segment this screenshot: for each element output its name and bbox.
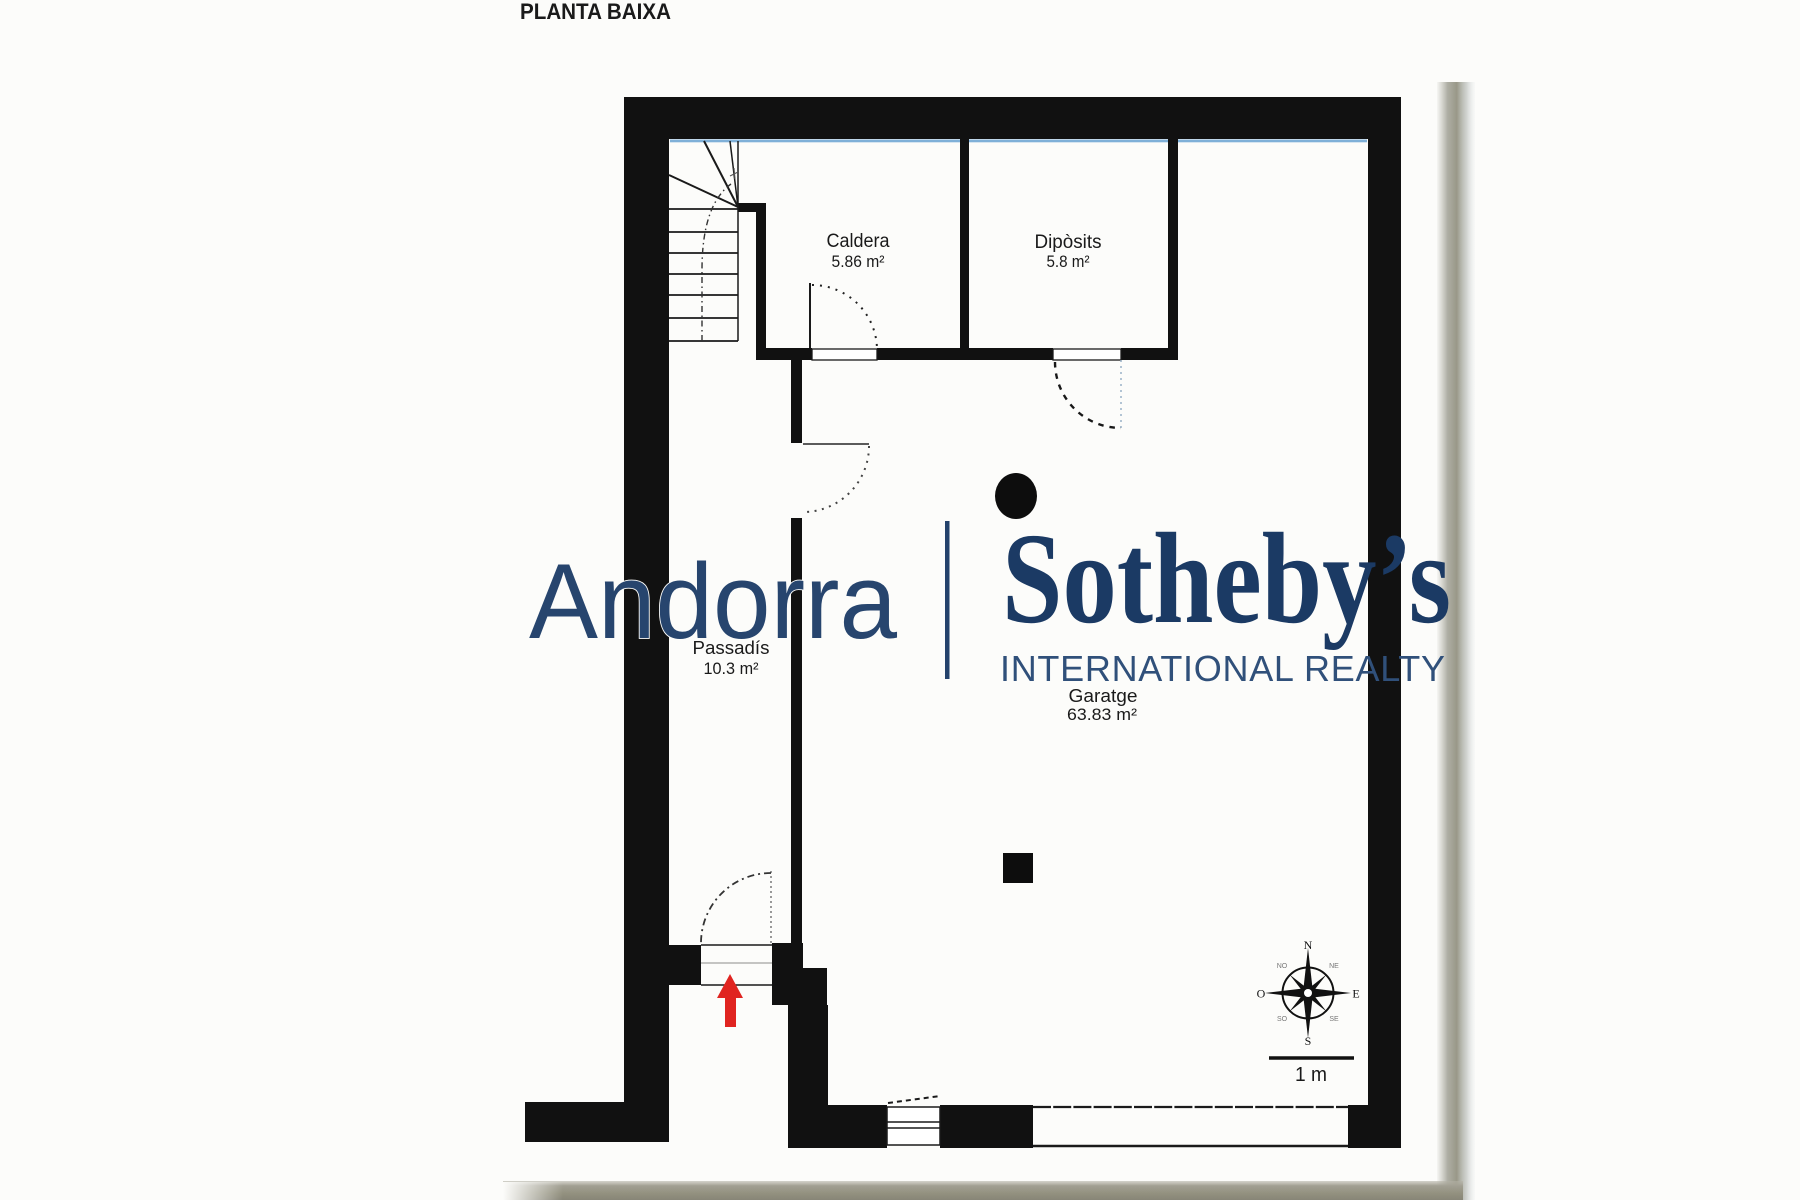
svg-text:5.8 m²: 5.8 m² [1047, 252, 1090, 271]
svg-text:NO: NO [1277, 963, 1288, 970]
svg-text:10.3 m²: 10.3 m² [704, 659, 759, 678]
svg-text:SO: SO [1277, 1016, 1288, 1023]
svg-text:Sotheby’s: Sotheby’s [1002, 507, 1451, 651]
svg-text:5.86 m²: 5.86 m² [832, 252, 885, 271]
svg-text:Garatge: Garatge [1069, 686, 1138, 706]
svg-text:Andorra: Andorra [529, 541, 897, 661]
svg-text:NE: NE [1329, 963, 1339, 970]
svg-text:S: S [1305, 1034, 1312, 1048]
svg-text:Caldera: Caldera [827, 231, 890, 252]
svg-text:INTERNATIONAL REALTY: INTERNATIONAL REALTY [1000, 648, 1445, 689]
svg-text:SE: SE [1329, 1016, 1339, 1023]
svg-text:E: E [1352, 987, 1359, 1001]
svg-text:N: N [1304, 938, 1313, 952]
svg-text:PLANTA BAIXA: PLANTA BAIXA [520, 0, 671, 24]
svg-text:1 m: 1 m [1295, 1064, 1327, 1086]
svg-text:63.83 m²: 63.83 m² [1067, 705, 1137, 724]
svg-text:Dipòsits: Dipòsits [1035, 232, 1102, 253]
svg-text:O: O [1257, 987, 1266, 1001]
